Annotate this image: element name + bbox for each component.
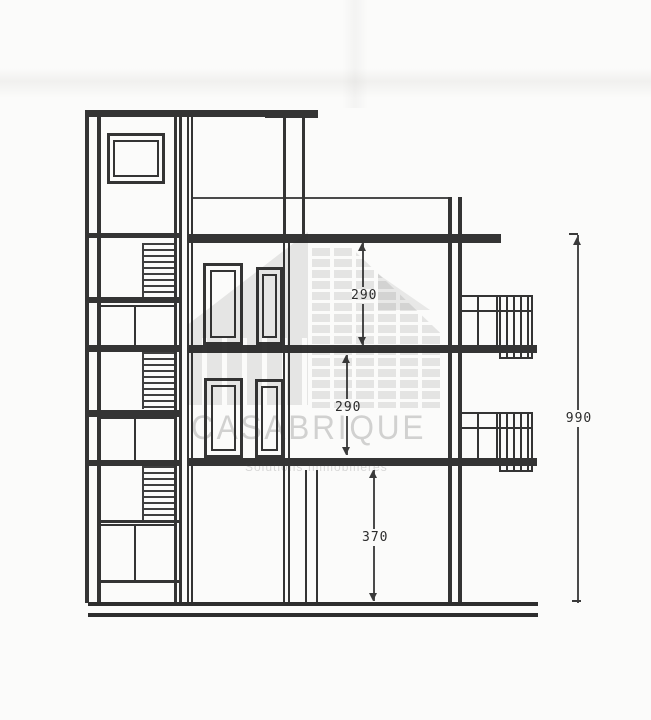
dimension-value: 990 bbox=[563, 410, 595, 427]
stair-flight bbox=[142, 466, 174, 520]
tower-right-wall bbox=[174, 117, 182, 603]
tower-landing-slab bbox=[89, 297, 182, 303]
scanned-blueprint-page: 290 290 370 990 CASABRIQUE Solutions bbox=[0, 0, 651, 720]
stair-landing bbox=[101, 524, 174, 580]
stair-landing bbox=[101, 417, 174, 460]
tower-landing-line bbox=[100, 580, 182, 583]
arrow-up-icon bbox=[358, 243, 366, 251]
tower-slab bbox=[89, 345, 182, 352]
roof-parapet-line bbox=[193, 197, 448, 199]
dimension-tick bbox=[572, 600, 581, 602]
arrow-up-icon bbox=[573, 237, 581, 245]
dimension-value: 370 bbox=[360, 529, 390, 546]
balcony-post bbox=[477, 295, 479, 345]
watermark-roof-slope-icon bbox=[378, 274, 430, 310]
ground-column bbox=[305, 470, 318, 602]
balcony-edge bbox=[531, 295, 533, 359]
tower-landing-slab bbox=[89, 410, 182, 417]
right-wall-floor1 bbox=[448, 353, 462, 458]
balcony-post bbox=[496, 412, 498, 458]
stair-flight bbox=[142, 352, 174, 409]
interior-wall-ground bbox=[283, 466, 290, 602]
balcony-edge bbox=[531, 412, 533, 472]
landing-divider bbox=[134, 419, 136, 460]
balcony-post bbox=[496, 295, 498, 345]
roof-slab bbox=[187, 234, 501, 243]
roof-parapet-wall bbox=[448, 197, 462, 234]
paper-fold bbox=[342, 0, 368, 108]
tower-landing-line bbox=[100, 520, 182, 523]
balcony-lip-line bbox=[499, 357, 533, 359]
watermark-wall-bars bbox=[187, 338, 308, 405]
landing-divider bbox=[134, 307, 136, 345]
arrow-down-icon bbox=[369, 593, 377, 601]
tower-outer-wall bbox=[85, 110, 89, 603]
paper-crease bbox=[0, 68, 651, 98]
balcony-post bbox=[477, 412, 479, 458]
tower-window-inner bbox=[113, 140, 159, 177]
watermark-brick-pattern bbox=[312, 245, 442, 408]
tower-slab bbox=[89, 233, 182, 238]
watermark-tagline-text: Solutions Immobilières bbox=[245, 460, 405, 474]
stair-flight bbox=[142, 243, 174, 297]
watermark-brand-text: CASABRIQUE bbox=[191, 409, 433, 451]
balcony-balusters bbox=[499, 412, 532, 458]
landing-divider bbox=[134, 526, 136, 580]
foundation-slab bbox=[88, 602, 538, 617]
chimney-wall bbox=[283, 117, 305, 234]
stair-landing bbox=[101, 305, 174, 345]
right-wall-ground bbox=[448, 466, 462, 602]
balcony-balusters bbox=[499, 295, 532, 345]
balcony-lip-line bbox=[499, 470, 533, 472]
right-wall-floor2 bbox=[448, 243, 462, 345]
